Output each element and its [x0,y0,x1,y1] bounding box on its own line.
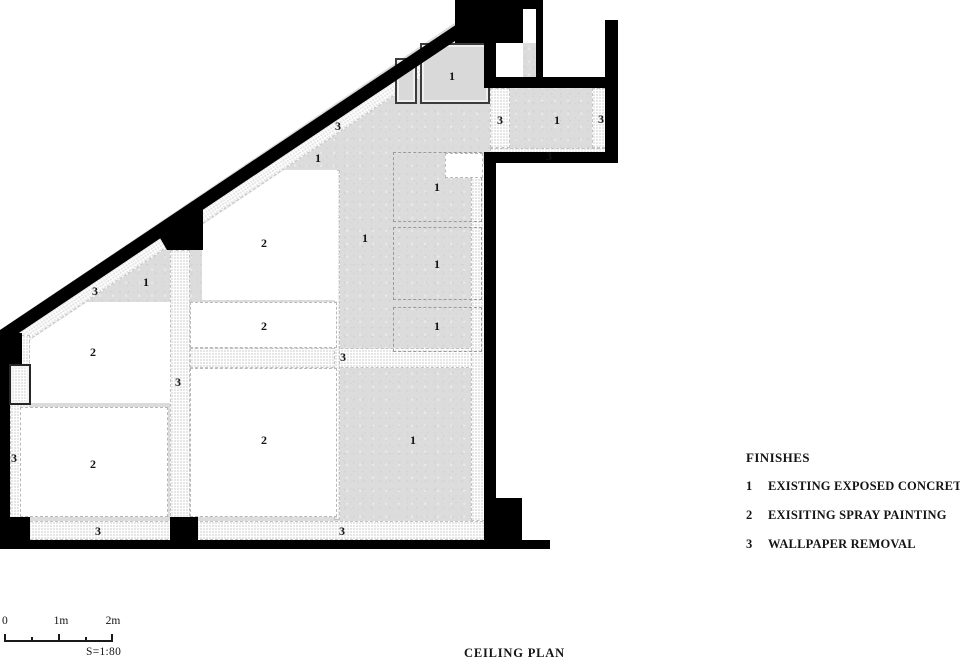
finish-marker-3: 3 [497,114,503,126]
scale-bar-tick [85,637,87,640]
scale-tick-label-2m: 2m [106,615,121,627]
finish-marker-1: 1 [143,276,149,288]
finish-marker-1: 1 [434,320,440,332]
legend-item-3-num: 3 [746,537,768,552]
legend-item-3-label: WALLPAPER REMOVAL [768,537,916,552]
legend-item-1: 1 EXISTING EXPOSED CONCRETE [746,479,960,494]
finish-marker-1: 1 [434,181,440,193]
scale-tick-label-1m: 1m [54,615,69,627]
finish-marker-3: 3 [335,120,341,132]
scale-bar-tick [111,634,113,640]
scale-bar-tick [58,634,60,640]
finishes-legend: FINISHES 1 EXISTING EXPOSED CONCRETE 2 E… [746,450,960,566]
legend-item-1-label: EXISTING EXPOSED CONCRETE [768,479,960,494]
legend-item-2-label: EXISITING SPRAY PAINTING [768,508,947,523]
scale-bar-tick [31,637,33,640]
legend-item-2: 2 EXISITING SPRAY PAINTING [746,508,960,523]
finish-marker-2: 2 [261,434,267,446]
drawing-title: CEILING PLAN [464,646,565,661]
finish-marker-3: 3 [92,285,98,297]
finish-marker-1: 1 [362,232,368,244]
finish-marker-3: 3 [598,113,604,125]
scale-bar-tick [4,634,6,640]
finish-marker-3: 3 [339,525,345,537]
finish-marker-1: 1 [410,434,416,446]
drawing-sheet: 133133111211321233213233 FINISHES 1 EXIS… [0,0,960,664]
finish-marker-1: 1 [434,258,440,270]
legend-item-1-num: 1 [746,479,768,494]
scale-tick-label-0: 0 [2,615,8,627]
scale-ratio: S=1:80 [86,646,121,658]
finish-marker-3: 3 [175,376,181,388]
scale-bar-line [4,640,113,642]
finish-marker-3: 3 [11,452,17,464]
finish-marker-1: 1 [554,114,560,126]
finish-marker-2: 2 [261,320,267,332]
finish-marker-3: 3 [340,351,346,363]
finish-marker-3: 3 [95,525,101,537]
legend-title: FINISHES [746,450,960,466]
scale-bar: 0 1m 2m S=1:80 [0,612,200,664]
finish-marker-3: 3 [546,150,552,162]
finish-marker-2: 2 [90,346,96,358]
finish-marker-1: 1 [315,152,321,164]
legend-item-3: 3 WALLPAPER REMOVAL [746,537,960,552]
finish-marker-1: 1 [449,70,455,82]
legend-item-2-num: 2 [746,508,768,523]
finish-marker-2: 2 [90,458,96,470]
finish-marker-2: 2 [261,237,267,249]
